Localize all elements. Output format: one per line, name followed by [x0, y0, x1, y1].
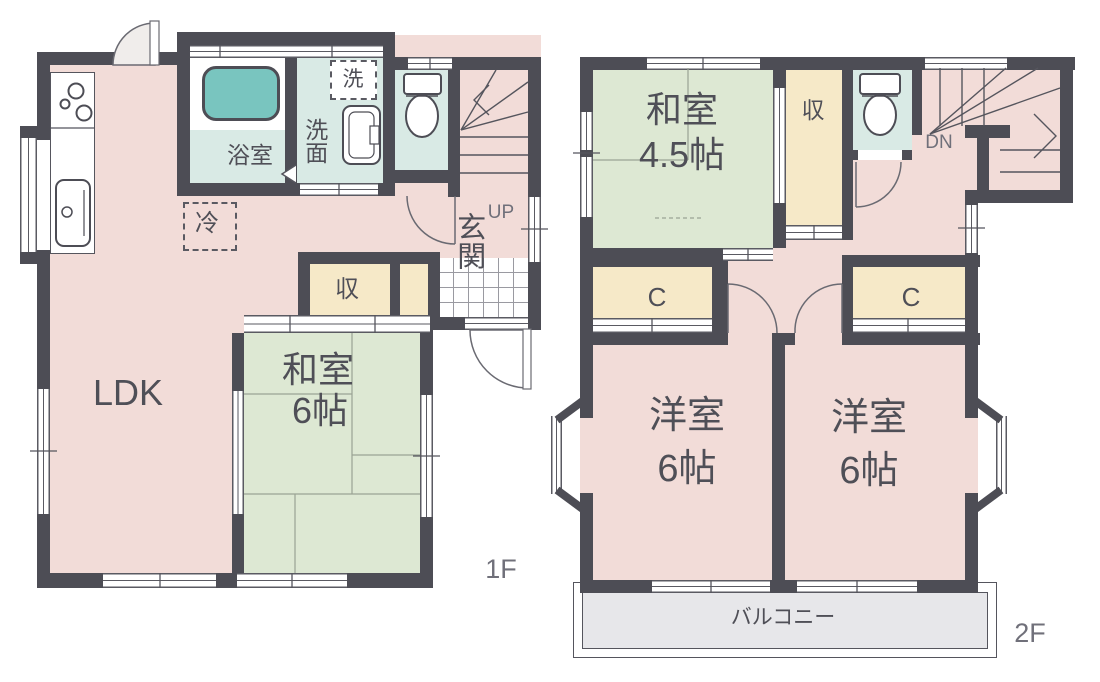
room-size-washitsu-1f: 6帖	[260, 391, 380, 431]
wall	[842, 68, 853, 240]
wall	[383, 45, 395, 183]
wall	[177, 45, 190, 196]
wall	[977, 138, 989, 193]
label-closet-right: C	[891, 281, 931, 313]
room-size-bedroom-left: 6帖	[627, 448, 747, 490]
label-laundry: 洗	[333, 64, 373, 96]
wall	[20, 126, 37, 138]
floor-plan: LDK 和室 6帖 浴室 洗面 洗 冷 収 玄関 UP 1F 和室 4.5帖 収…	[0, 0, 1100, 682]
room-label-ldk: LDK	[68, 371, 188, 415]
window	[965, 205, 978, 253]
window	[925, 57, 1007, 70]
bay-window-left	[551, 416, 562, 494]
room-label-washitsu-2f: 和室	[622, 89, 742, 131]
wall	[383, 57, 541, 70]
wall	[390, 264, 400, 315]
window	[420, 395, 433, 517]
wall	[580, 580, 978, 593]
label-stairs-down: DN	[915, 131, 963, 155]
door-opening	[723, 248, 773, 261]
wall	[777, 333, 795, 345]
room-label-washroom: 洗面	[297, 108, 331, 174]
door-opening	[858, 150, 902, 160]
window	[797, 580, 917, 593]
sliding-door	[773, 88, 786, 203]
wall	[298, 264, 310, 315]
room-label-bathroom: 浴室	[200, 142, 300, 170]
entrance-door-opening	[465, 317, 528, 330]
window	[408, 57, 452, 70]
wall	[965, 125, 1010, 138]
window	[528, 197, 541, 262]
window	[652, 580, 770, 593]
wall	[842, 255, 853, 345]
window	[103, 573, 216, 588]
wall-opening	[965, 418, 978, 493]
wall	[712, 255, 728, 345]
wall	[528, 57, 541, 330]
label-stairs-up: UP	[479, 201, 523, 225]
wall	[842, 255, 980, 267]
closet-doors	[853, 318, 965, 333]
room-size-bedroom-right: 6帖	[809, 450, 929, 492]
wall	[1060, 57, 1073, 203]
closet-storage-2f	[786, 68, 842, 225]
room-toilet-2f	[853, 68, 912, 150]
window	[237, 573, 347, 588]
sliding-door	[300, 183, 378, 196]
label-refrigerator: 冷	[187, 208, 227, 240]
room-label-bedroom-right: 洋室	[809, 396, 929, 440]
floor-label-2f: 2F	[1004, 617, 1056, 651]
wall	[395, 170, 448, 183]
wall	[298, 252, 440, 264]
wall	[37, 52, 115, 65]
window	[190, 45, 383, 58]
wall-opening	[580, 418, 593, 493]
shoe-cabinet	[400, 264, 428, 315]
window	[647, 57, 760, 70]
floor-label-1f: 1F	[475, 553, 527, 587]
closet-doors	[593, 318, 712, 333]
room-label-washitsu-1f: 和室	[258, 350, 378, 390]
kitchen-counter	[50, 72, 95, 254]
bay-window-kitchen	[20, 138, 37, 252]
window	[37, 389, 50, 514]
room-size-washitsu-2f: 4.5帖	[617, 135, 747, 175]
label-closet-left: C	[637, 281, 677, 313]
bathtub	[202, 66, 280, 121]
bay-window-right	[996, 416, 1007, 494]
window	[580, 157, 593, 217]
window	[580, 112, 593, 150]
wall	[842, 333, 980, 345]
wall-opening	[37, 140, 50, 250]
room-toilet-1f	[395, 70, 448, 170]
label-storage-1f: 収	[327, 274, 367, 306]
sliding-door	[786, 225, 842, 240]
wall	[580, 333, 728, 345]
label-storage-2f: 収	[793, 95, 833, 127]
label-balcony: バルコニー	[693, 604, 873, 632]
sliding-door	[232, 391, 244, 514]
wall	[37, 573, 433, 588]
wall	[20, 252, 37, 264]
wall	[772, 333, 785, 580]
fusuma-doors	[244, 315, 430, 333]
wall	[448, 57, 460, 197]
wall	[912, 57, 922, 135]
wall	[580, 255, 728, 267]
wall	[177, 32, 390, 45]
room-label-bedroom-left: 洋室	[627, 394, 747, 438]
